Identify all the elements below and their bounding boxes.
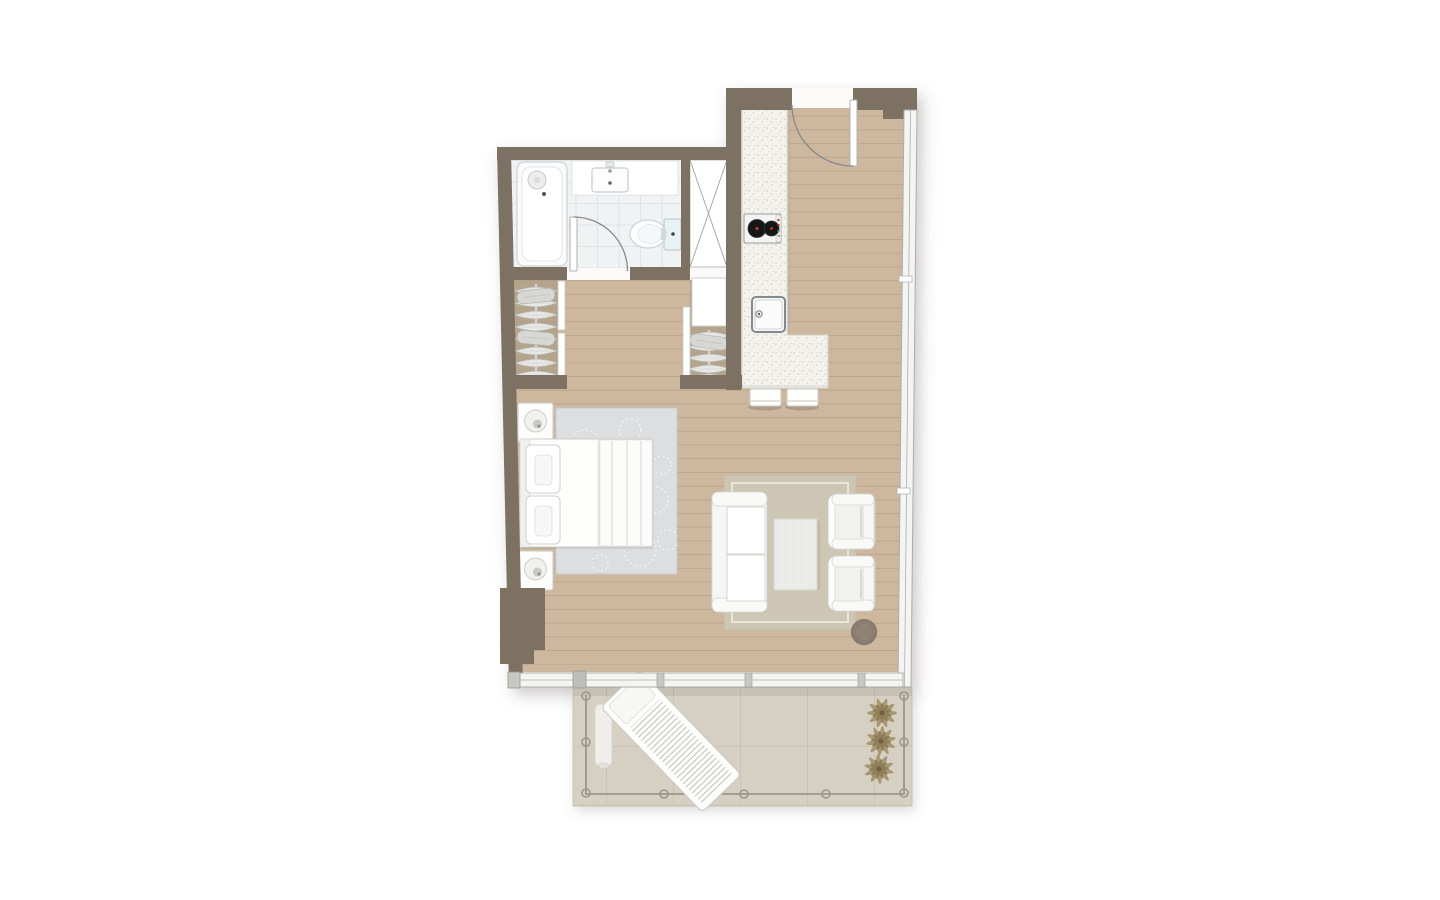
coffee-table: [774, 519, 820, 590]
flush-button: [671, 232, 675, 236]
tub-drain: [542, 192, 546, 196]
bathroom: [512, 160, 681, 271]
window-wall-bottom: [508, 671, 903, 688]
wardrobe-cabinet: [692, 278, 726, 326]
nightstand-bottom: [518, 551, 553, 590]
wall-bathroom-east: [681, 147, 690, 280]
kitchen-sink: [752, 297, 785, 332]
pillow: [526, 445, 560, 493]
vanity-faucet: [606, 162, 614, 167]
cooktop: [744, 214, 781, 243]
floor-plan-canvas: [0, 0, 1440, 900]
balcony: [573, 670, 912, 813]
bedroom: [518, 403, 678, 590]
toilet-hinge: [661, 228, 665, 240]
window-mullion: [899, 276, 912, 282]
wall-bathroom-south-left: [500, 267, 567, 280]
nightstand-top: [518, 403, 553, 442]
entry-door-leaf: [850, 100, 857, 166]
duvet-fold: [598, 440, 652, 546]
bar-stool: [750, 389, 781, 406]
wall-kitchen-west: [726, 88, 741, 390]
window-mullion: [573, 671, 586, 688]
wall-closet-south-left: [505, 375, 567, 389]
sofa-seat: [727, 555, 765, 601]
sofa-back: [712, 497, 727, 607]
wall-entry-north-right: [853, 88, 917, 110]
floor-plan-page: [0, 0, 1440, 900]
window-mullion: [745, 673, 752, 687]
sofa-seat: [727, 507, 765, 554]
armchair: [828, 556, 875, 611]
wall-west-pier: [500, 588, 545, 650]
vanity: [572, 161, 678, 195]
sliding-door-panel: [558, 281, 565, 330]
wall-entry-north-left: [726, 88, 792, 110]
window-mullion: [657, 673, 664, 687]
bathtub: [517, 162, 567, 266]
sofa-armrest: [712, 492, 767, 506]
wall-bathroom-north: [497, 147, 740, 160]
window-mullion: [508, 672, 520, 688]
sofa: [712, 492, 767, 612]
armchair: [828, 494, 875, 549]
window-mullion: [897, 488, 910, 494]
pouf: [852, 620, 877, 645]
pillow: [526, 496, 560, 544]
toilet: [630, 219, 681, 250]
wall-west-pier-step: [500, 648, 534, 664]
storage-closet: [690, 160, 727, 267]
bar-stool: [787, 389, 818, 406]
sliding-door-panel: [683, 307, 690, 384]
living-area: [712, 475, 877, 645]
bed: [520, 439, 653, 549]
window-mullion: [858, 673, 865, 687]
bathroom-door-leaf: [570, 217, 577, 271]
wall-closet-south-right: [680, 375, 742, 389]
sink-drain: [608, 181, 612, 185]
